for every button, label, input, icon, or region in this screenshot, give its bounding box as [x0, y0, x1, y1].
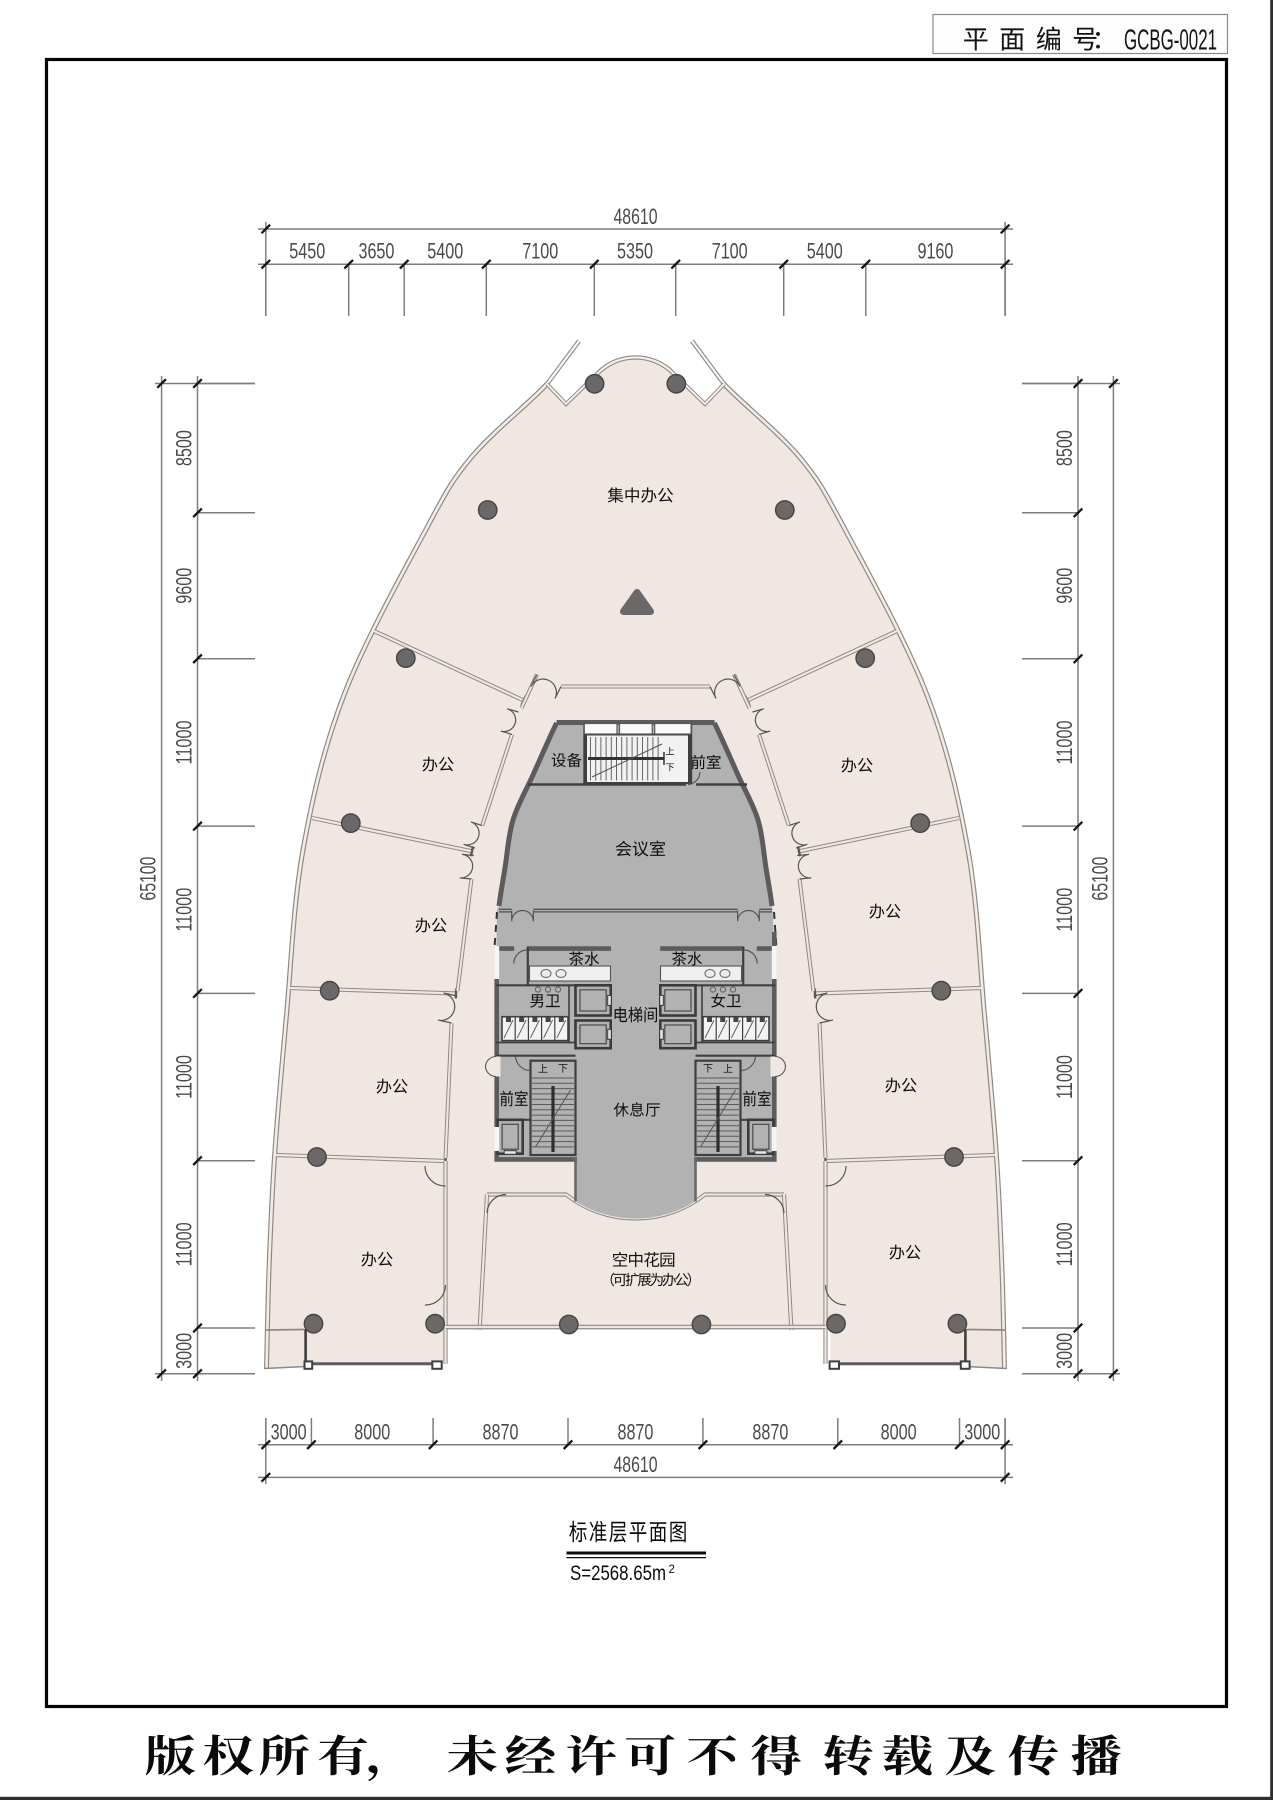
svg-text:65100: 65100: [136, 857, 161, 901]
svg-text:11000: 11000: [172, 720, 197, 764]
svg-text:3000: 3000: [172, 1333, 197, 1369]
svg-text:11000: 11000: [1052, 720, 1077, 764]
svg-text:3000: 3000: [271, 1420, 307, 1445]
svg-text:3000: 3000: [964, 1420, 1000, 1445]
svg-text:11000: 11000: [172, 1222, 197, 1266]
svg-text:11000: 11000: [172, 1055, 197, 1099]
svg-text:8000: 8000: [354, 1420, 390, 1445]
svg-text:11000: 11000: [1052, 1222, 1077, 1266]
svg-text:5350: 5350: [617, 239, 653, 264]
svg-text:8870: 8870: [752, 1420, 788, 1445]
svg-text:11000: 11000: [172, 888, 197, 932]
svg-text:9160: 9160: [917, 239, 953, 264]
svg-text:7100: 7100: [522, 239, 558, 264]
svg-text:3000: 3000: [1052, 1333, 1077, 1369]
svg-text:8870: 8870: [483, 1420, 519, 1445]
svg-text:8500: 8500: [172, 430, 197, 466]
svg-text:5400: 5400: [807, 239, 843, 264]
svg-text:5400: 5400: [427, 239, 463, 264]
svg-text:8870: 8870: [617, 1420, 653, 1445]
svg-text:8000: 8000: [881, 1420, 917, 1445]
svg-text:48610: 48610: [614, 204, 658, 229]
svg-text:2: 2: [669, 1564, 675, 1576]
svg-text:3650: 3650: [358, 239, 394, 264]
svg-text:7100: 7100: [712, 239, 748, 264]
svg-text:9600: 9600: [172, 568, 197, 604]
svg-text:48610: 48610: [614, 1452, 658, 1477]
svg-text:GCBG-0021: GCBG-0021: [1124, 25, 1217, 57]
svg-text:5450: 5450: [289, 239, 325, 264]
svg-text:S=2568.65m: S=2568.65m: [570, 1561, 666, 1585]
svg-text:65100: 65100: [1088, 857, 1113, 901]
svg-text:11000: 11000: [1052, 1055, 1077, 1099]
svg-text:11000: 11000: [1052, 888, 1077, 932]
svg-text:9600: 9600: [1052, 568, 1077, 604]
svg-text:8500: 8500: [1052, 430, 1077, 466]
